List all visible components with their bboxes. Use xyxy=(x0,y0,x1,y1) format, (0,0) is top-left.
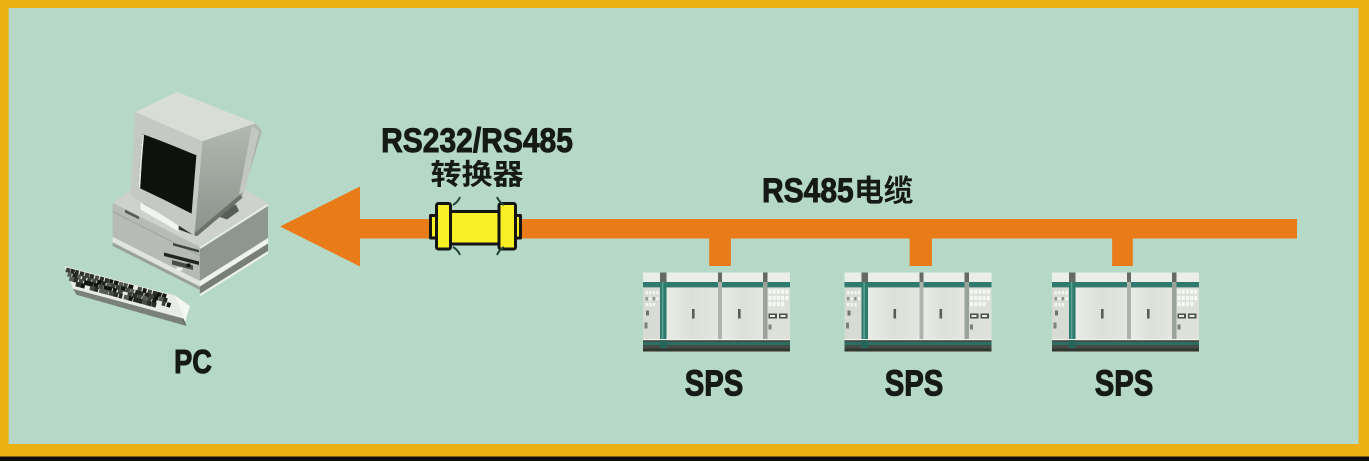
svg-text:SPS: SPS xyxy=(885,362,944,403)
svg-text:RS232/RS485: RS232/RS485 xyxy=(381,121,573,159)
svg-text:RS485: RS485 xyxy=(762,171,854,209)
svg-text:SPS: SPS xyxy=(685,362,744,403)
svg-text:PC: PC xyxy=(174,345,212,381)
svg-text:SPS: SPS xyxy=(1095,362,1154,403)
